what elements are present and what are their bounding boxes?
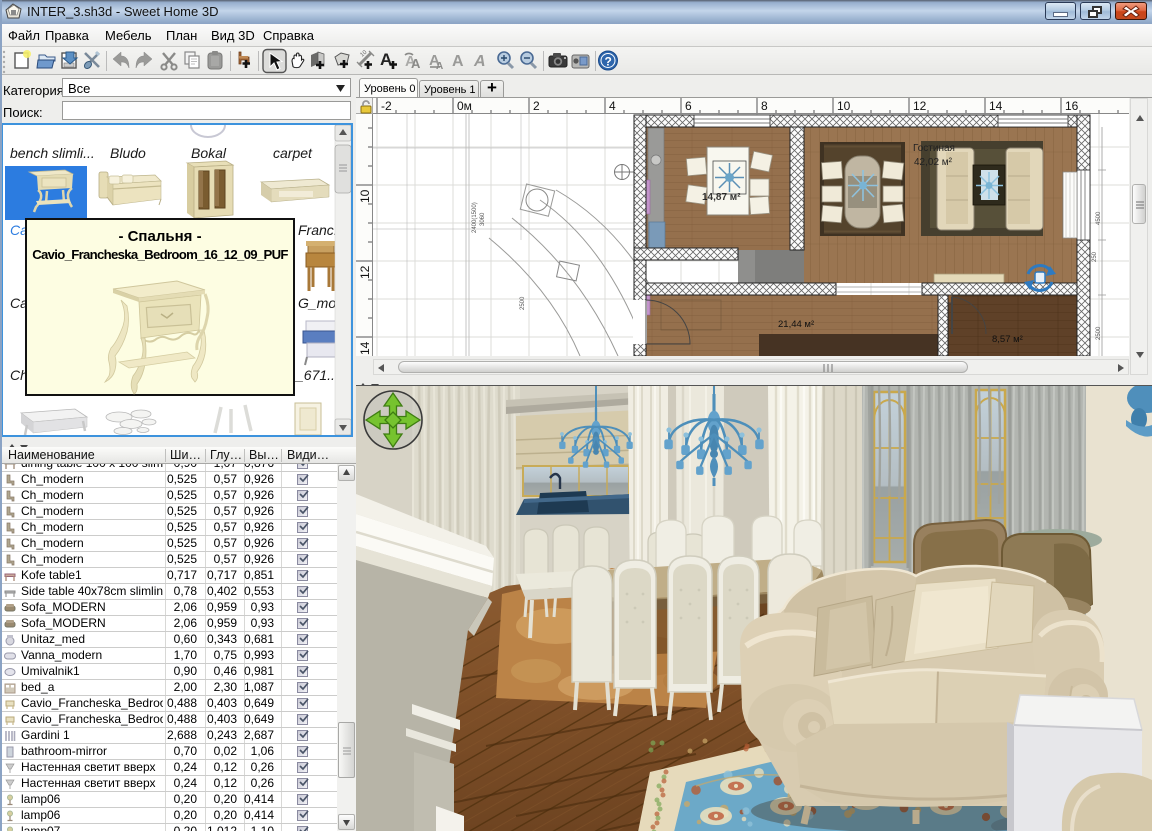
svg-text:14: 14 — [989, 99, 1003, 113]
svg-text:16: 16 — [1065, 99, 1079, 113]
svg-text:6: 6 — [685, 99, 692, 113]
svg-text:-2: -2 — [381, 99, 392, 113]
svg-text:2: 2 — [533, 99, 540, 113]
svg-text:Гостиная: Гостиная — [913, 143, 955, 154]
svg-text:8: 8 — [761, 99, 768, 113]
svg-text:8,57 м²: 8,57 м² — [992, 334, 1023, 345]
svg-text:0м: 0м — [457, 99, 472, 113]
svg-text:Bludo: Bludo — [110, 145, 146, 161]
svg-text:bench slimli...: bench slimli... — [10, 145, 95, 161]
svg-text:4: 4 — [609, 99, 616, 113]
svg-text:Bokal: Bokal — [191, 145, 227, 161]
svg-text:14: 14 — [358, 341, 372, 355]
svg-text:12: 12 — [913, 99, 927, 113]
svg-text:2500: 2500 — [520, 296, 526, 310]
svg-text:A: A — [452, 53, 464, 70]
svg-text:250: 250 — [1092, 251, 1098, 262]
svg-text:3060: 3060 — [480, 212, 486, 226]
svg-text:10: 10 — [837, 99, 851, 113]
svg-text:4500: 4500 — [1096, 211, 1102, 225]
svg-text:A: A — [436, 61, 443, 72]
svg-text:A: A — [411, 56, 421, 71]
svg-text:carpet: carpet — [273, 145, 313, 161]
svg-text:2400(1500): 2400(1500) — [472, 202, 478, 233]
svg-text:12: 12 — [358, 265, 372, 279]
svg-text:10: 10 — [358, 189, 372, 203]
svg-text:A: A — [473, 53, 486, 70]
svg-text:21,44 м²: 21,44 м² — [778, 319, 814, 330]
svg-text:?: ? — [605, 55, 612, 69]
svg-text:_671...: _671... — [294, 367, 339, 383]
svg-text:42,02 м²: 42,02 м² — [914, 157, 953, 168]
svg-text:14,87 м²: 14,87 м² — [702, 192, 741, 203]
svg-text:2500: 2500 — [1096, 326, 1102, 340]
svg-text:A: A — [380, 50, 392, 69]
